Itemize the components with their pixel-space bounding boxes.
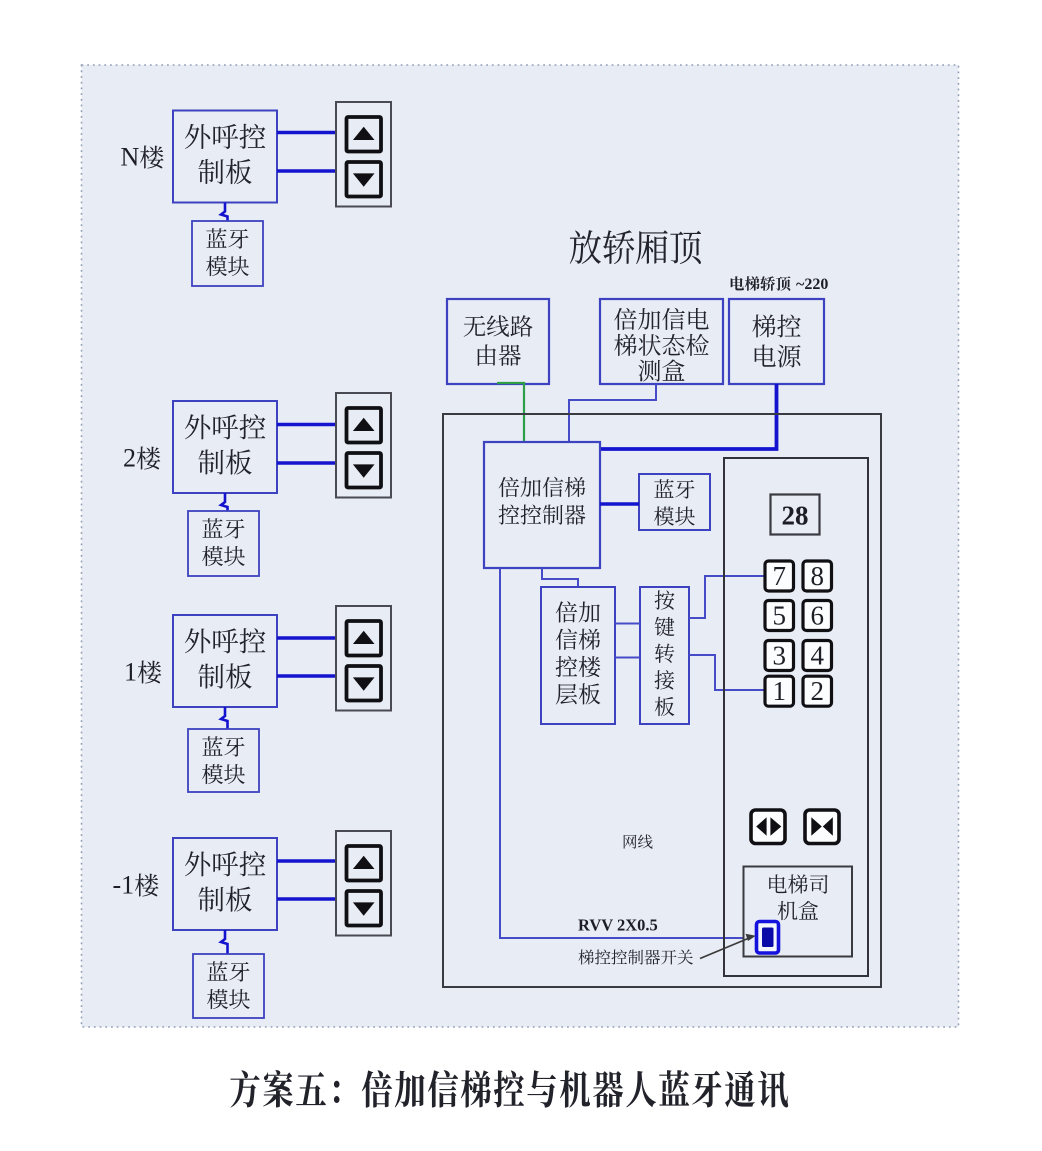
svg-text:8: 8 (810, 561, 824, 591)
svg-text:3: 3 (772, 641, 786, 671)
svg-text:4: 4 (810, 641, 824, 671)
svg-text:5: 5 (772, 601, 786, 631)
svg-text:1: 1 (772, 676, 786, 706)
svg-text:RVV 2X0.5: RVV 2X0.5 (578, 916, 658, 935)
svg-text:N: N (121, 143, 140, 172)
svg-text:7: 7 (772, 561, 786, 591)
svg-text:28: 28 (782, 500, 809, 530)
svg-text:-1: -1 (113, 871, 135, 900)
svg-text:~220: ~220 (796, 276, 828, 293)
svg-text:2: 2 (123, 444, 136, 473)
svg-text:2: 2 (810, 676, 824, 706)
svg-text:6: 6 (810, 601, 824, 631)
svg-text:1: 1 (124, 658, 137, 687)
